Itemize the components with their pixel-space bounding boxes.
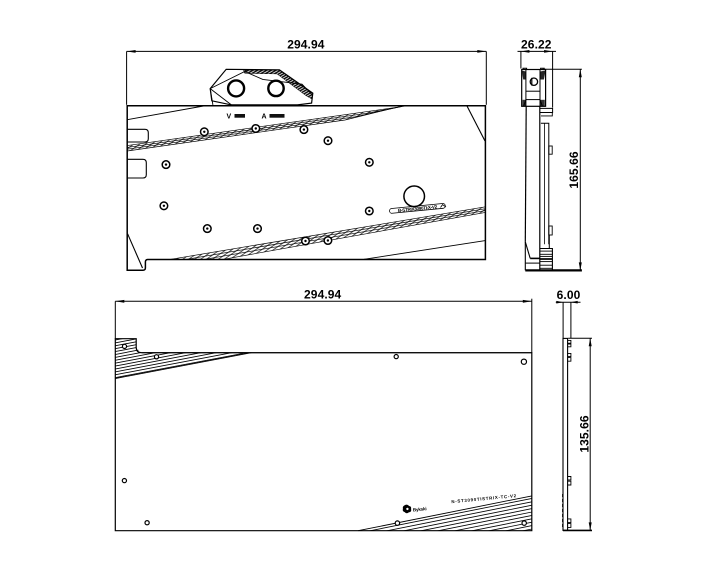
- svg-text:294.94: 294.94: [304, 287, 342, 301]
- svg-text:A: A: [262, 114, 267, 121]
- svg-text:6.00: 6.00: [557, 288, 581, 302]
- svg-text:165.66: 165.66: [567, 151, 581, 189]
- svg-text:294.94: 294.94: [287, 38, 325, 52]
- svg-text:135.66: 135.66: [578, 415, 592, 453]
- svg-text:26.22: 26.22: [521, 38, 552, 52]
- svg-text:V: V: [227, 114, 232, 121]
